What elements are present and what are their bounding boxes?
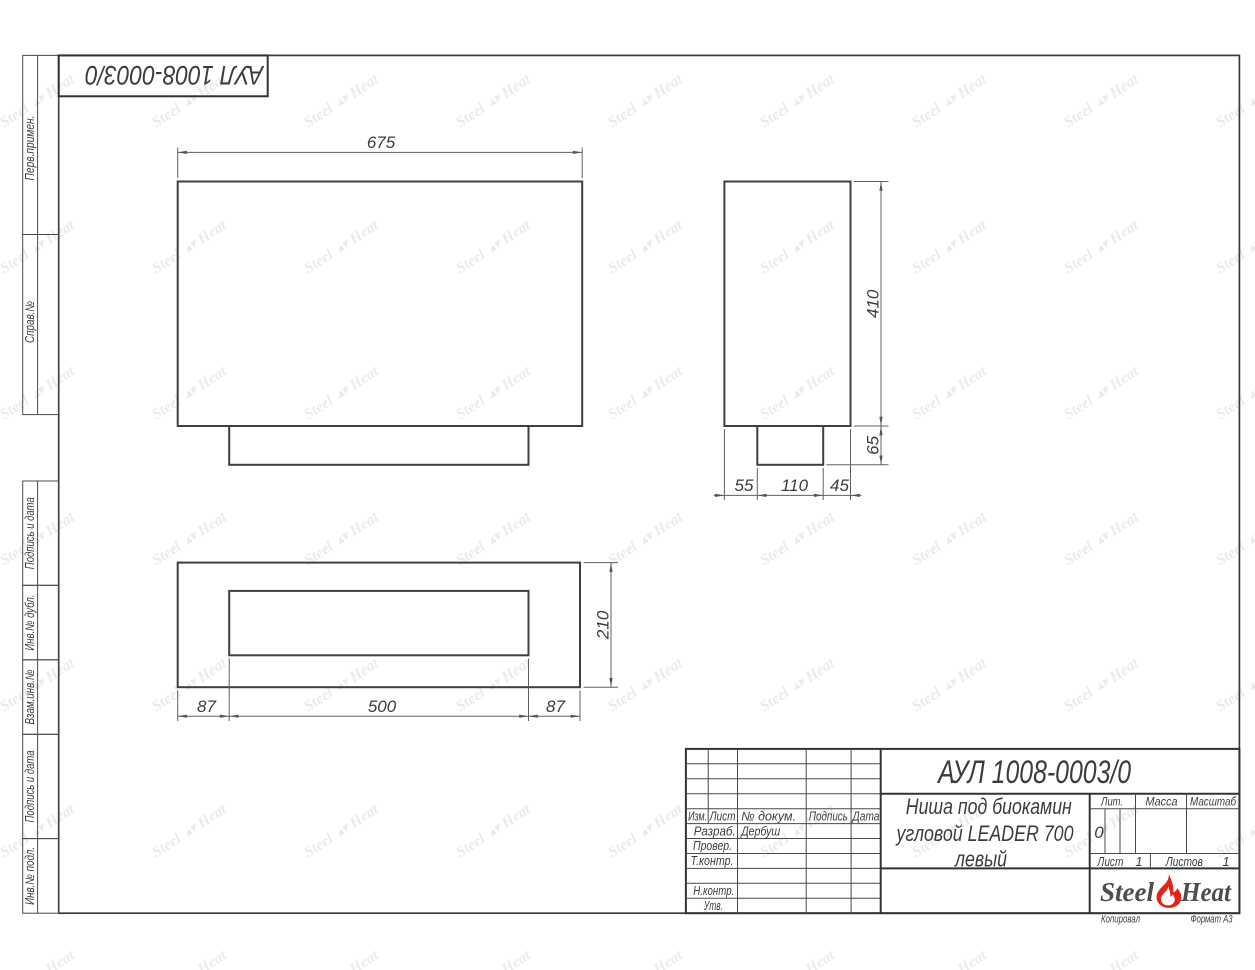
svg-text:110: 110 xyxy=(781,476,809,495)
svg-text:№ докум.: № докум. xyxy=(741,809,796,823)
svg-text:Утв.: Утв. xyxy=(703,899,723,913)
svg-text:Лист: Лист xyxy=(709,809,736,823)
svg-text:Справ.№: Справ.№ xyxy=(23,301,37,343)
svg-text:левый: левый xyxy=(953,847,1007,872)
svg-text:500: 500 xyxy=(368,697,397,716)
svg-text:87: 87 xyxy=(546,697,565,716)
svg-text:Лист: Лист xyxy=(1097,854,1124,869)
svg-text:Провер.: Провер. xyxy=(693,839,732,853)
svg-text:Дербуш: Дербуш xyxy=(740,824,781,838)
svg-text:Формат А3: Формат А3 xyxy=(1191,914,1234,926)
svg-text:Дата: Дата xyxy=(851,809,880,823)
svg-text:Взам.инв.№: Взам.инв.№ xyxy=(23,669,37,724)
svg-text:Инв.№ дубл.: Инв.№ дубл. xyxy=(23,595,37,651)
svg-text:Инв.№ подл.: Инв.№ подл. xyxy=(23,847,37,905)
svg-text:АУЛ 1008-0003/0: АУЛ 1008-0003/0 xyxy=(85,60,265,90)
svg-text:Изм.: Изм. xyxy=(688,809,707,823)
svg-text:675: 675 xyxy=(367,133,396,152)
svg-text:1: 1 xyxy=(1135,854,1142,869)
svg-text:410: 410 xyxy=(864,289,883,318)
svg-text:Ниша под биокамин: Ниша под биокамин xyxy=(906,794,1072,819)
svg-text:Лит.: Лит. xyxy=(1100,797,1123,809)
svg-text:87: 87 xyxy=(197,697,216,716)
svg-text:45: 45 xyxy=(830,476,849,495)
svg-text:65: 65 xyxy=(864,435,883,454)
svg-text:55: 55 xyxy=(735,476,754,495)
svg-text:Подпись: Подпись xyxy=(809,809,848,823)
svg-text:0: 0 xyxy=(1094,823,1104,842)
svg-text:Листов: Листов xyxy=(1165,854,1203,869)
svg-text:1: 1 xyxy=(1222,854,1229,869)
svg-text:Heat: Heat xyxy=(1180,877,1232,907)
svg-text:210: 210 xyxy=(594,610,613,640)
svg-text:Т.контр.: Т.контр. xyxy=(691,854,734,868)
svg-text:АУЛ 1008-0003/0: АУЛ 1008-0003/0 xyxy=(937,754,1132,790)
svg-text:Копировал: Копировал xyxy=(1101,914,1140,926)
svg-text:Разраб.: Разраб. xyxy=(694,824,736,838)
svg-text:угловой LEADER 700: угловой LEADER 700 xyxy=(895,821,1074,846)
svg-text:Перв.примен.: Перв.примен. xyxy=(23,116,37,181)
svg-text:Н.контр.: Н.контр. xyxy=(693,884,734,898)
svg-text:Steel: Steel xyxy=(1100,877,1154,907)
svg-text:Подпись и дата: Подпись и дата xyxy=(23,750,37,822)
svg-text:Масса: Масса xyxy=(1146,797,1178,809)
svg-text:Масштаб: Масштаб xyxy=(1190,797,1236,809)
svg-text:Подпись и дата: Подпись и дата xyxy=(23,497,37,569)
